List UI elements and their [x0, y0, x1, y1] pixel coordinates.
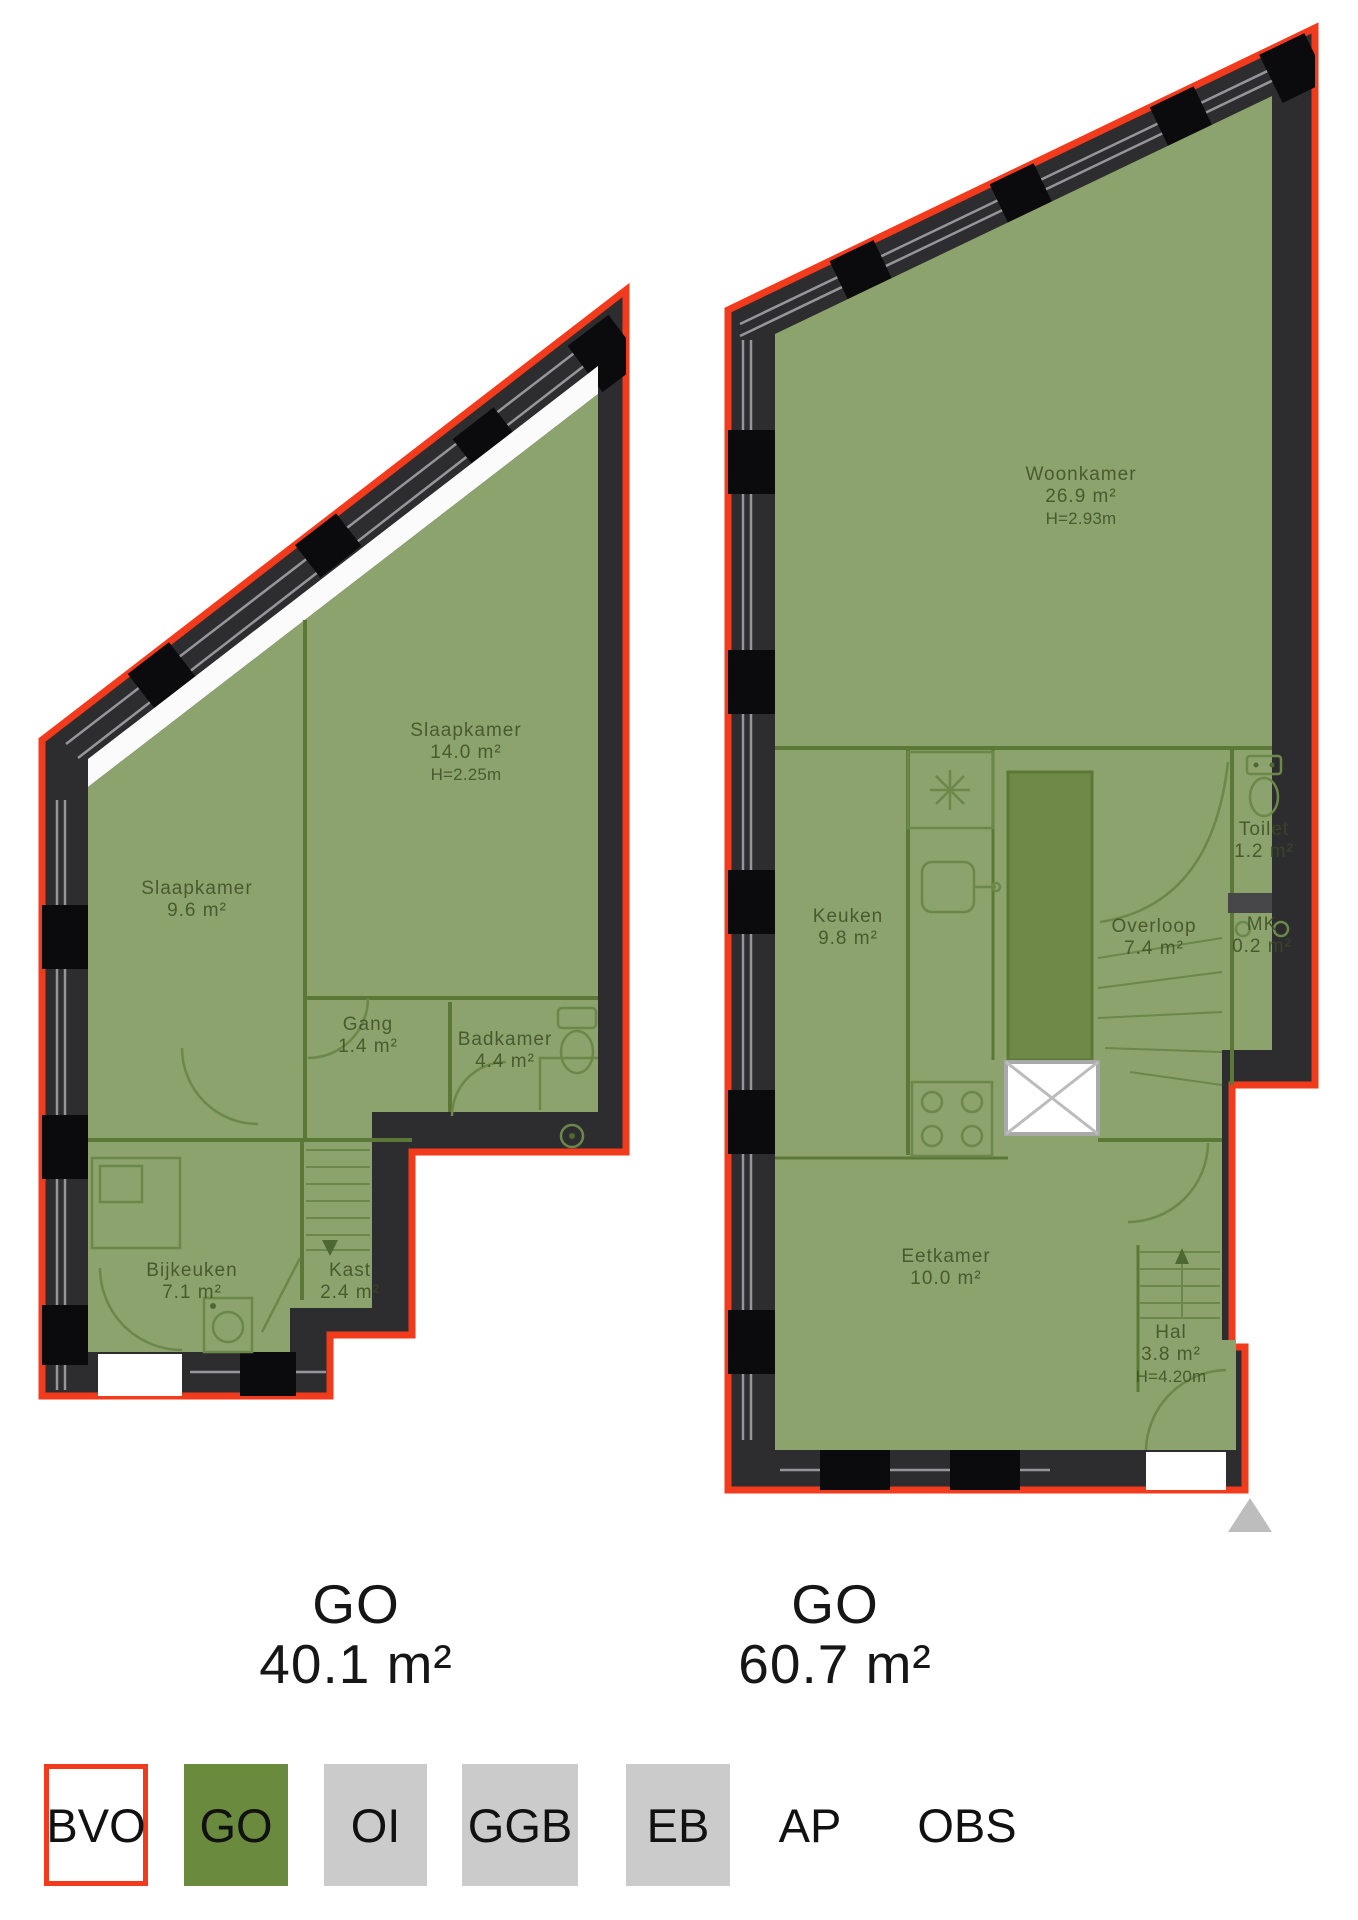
- legend-label-obs: OBS: [917, 1798, 1016, 1853]
- legend-swatch-bvo: BVO: [44, 1764, 148, 1886]
- elevator-shaft: [1006, 1062, 1098, 1134]
- legend-swatch-obs: OBS: [892, 1764, 1042, 1886]
- entry-door-gap-left: [98, 1354, 182, 1396]
- room-label-slaapkamer-1: Slaapkamer 14.0 m² H=2.25m: [410, 720, 521, 785]
- legend-swatch-ap: AP: [752, 1764, 868, 1886]
- legend-swatch-eb: EB: [626, 1764, 730, 1886]
- room-label-gang: Gang 1.4 m²: [338, 1014, 398, 1058]
- room-label-eetkamer: Eetkamer 10.0 m²: [901, 1246, 990, 1290]
- room-label-bijkeuken: Bijkeuken 7.1 m²: [146, 1260, 237, 1304]
- room-label-mk: MK 0.2 m²: [1232, 914, 1292, 958]
- room-label-hal: Hal 3.8 m² H=4.20m: [1136, 1322, 1207, 1387]
- room-label-badkamer: Badkamer 4.4 m²: [458, 1029, 553, 1073]
- room-label-woonkamer: Woonkamer 26.9 m² H=2.93m: [1025, 464, 1136, 529]
- legend-label-ap: AP: [779, 1798, 842, 1853]
- go-total-right: GO 60.7 m²: [738, 1574, 931, 1694]
- room-label-slaapkamer-2: Slaapkamer 9.6 m²: [141, 878, 252, 922]
- go-total-left: GO 40.1 m²: [259, 1574, 452, 1694]
- legend-label-oi: OI: [351, 1798, 401, 1853]
- room-label-kast: Kast 2.4 m²: [320, 1260, 380, 1304]
- legend-label-eb: EB: [647, 1798, 710, 1853]
- legend-swatch-ggb: GGB: [462, 1764, 578, 1886]
- direction-triangle-icon: [1228, 1498, 1272, 1532]
- legend-label-ggb: GGB: [468, 1798, 572, 1853]
- legend-swatch-oi: OI: [324, 1764, 427, 1886]
- legend-label-go: GO: [199, 1798, 272, 1853]
- entry-door-gap-right: [1146, 1452, 1226, 1490]
- stairwell-void: [1008, 772, 1092, 1060]
- legend-swatch-go: GO: [184, 1764, 288, 1886]
- right-floorplan: [728, 28, 1315, 1490]
- floorplan-canvas: [0, 0, 1358, 1920]
- floorplan-sheet: Slaapkamer 14.0 m² H=2.25m Slaapkamer 9.…: [0, 0, 1358, 1920]
- room-label-toilet: Toilet 1.2 m²: [1234, 819, 1294, 863]
- legend-label-bvo: BVO: [46, 1798, 145, 1853]
- room-label-keuken: Keuken 9.8 m²: [813, 906, 883, 950]
- left-floorplan: [42, 290, 626, 1396]
- room-label-overloop: Overloop 7.4 m²: [1111, 916, 1196, 960]
